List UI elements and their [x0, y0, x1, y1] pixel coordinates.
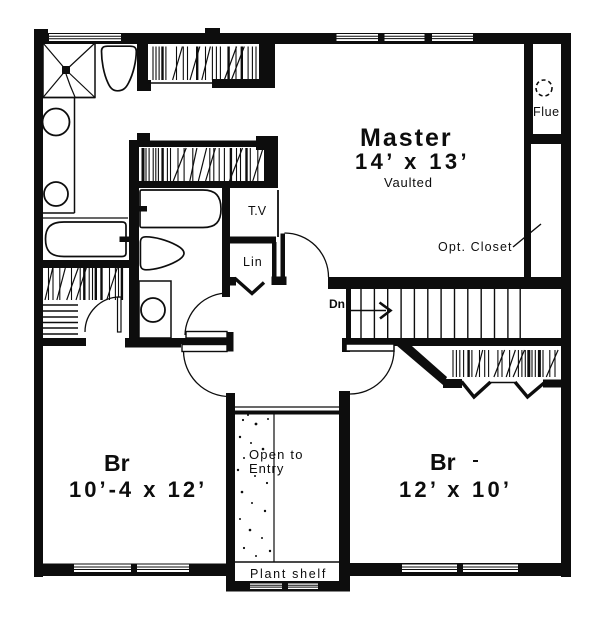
svg-text:Master: Master [360, 124, 453, 152]
svg-text:Opt. Closet: Opt. Closet [438, 240, 513, 254]
svg-text:Flue: Flue [533, 105, 560, 119]
svg-text:Open to: Open to [249, 447, 304, 462]
svg-text:Br: Br [104, 450, 130, 476]
svg-text:T.V: T.V [248, 204, 267, 218]
svg-text:14’ x 13’: 14’ x 13’ [355, 149, 470, 174]
svg-text:Br: Br [430, 449, 456, 475]
svg-text:Vaulted: Vaulted [384, 175, 433, 190]
svg-text:Entry: Entry [249, 461, 284, 476]
svg-text:12’ x 10’: 12’ x 10’ [399, 477, 512, 502]
svg-text:Plant shelf: Plant shelf [250, 567, 327, 581]
svg-text:10’-4 x 12’: 10’-4 x 12’ [69, 477, 207, 502]
svg-text:Lin: Lin [243, 255, 263, 269]
svg-text:Dn: Dn [329, 297, 345, 311]
